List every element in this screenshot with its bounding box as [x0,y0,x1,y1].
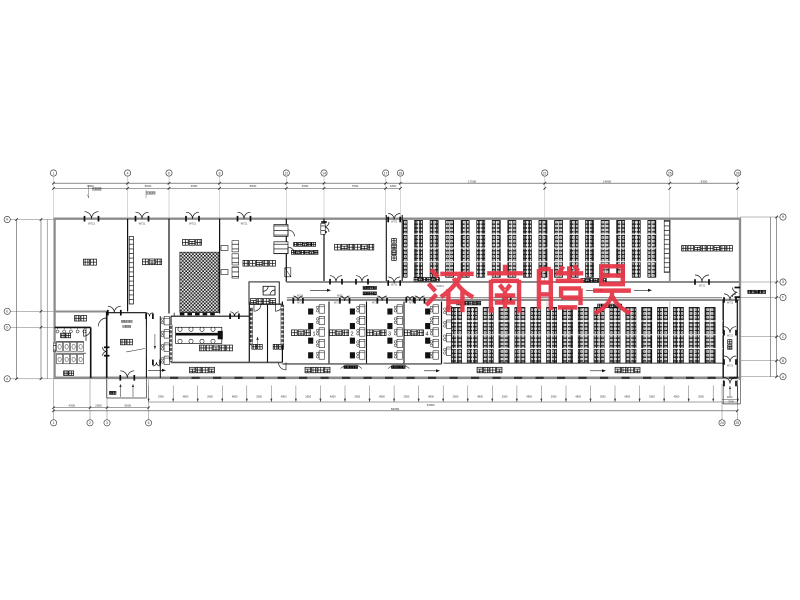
svg-text:4800: 4800 [477,395,483,399]
svg-text:25: 25 [735,421,739,425]
svg-text:9600: 9600 [87,184,94,188]
svg-text:2950: 2950 [502,395,508,399]
svg-text:W721: W721 [189,222,196,226]
svg-text:1: 1 [313,332,316,338]
svg-text:W721: W721 [337,295,344,298]
svg-text:12: 12 [284,171,288,175]
svg-text:1: 1 [53,171,55,175]
svg-text:2950: 2950 [354,395,360,399]
svg-text:4: 4 [127,171,129,175]
svg-text:4800: 4800 [183,395,189,399]
svg-text:2000: 2000 [95,403,102,407]
svg-text:8000: 8000 [250,184,257,188]
svg-text:24: 24 [720,421,724,425]
svg-text:W721: W721 [372,302,379,305]
svg-text:3: 3 [388,332,391,338]
svg-text:7500: 7500 [352,184,359,188]
svg-text:2950: 2950 [649,395,655,399]
svg-text:4: 4 [426,332,429,338]
svg-text:14800: 14800 [603,179,612,183]
svg-text:W721: W721 [727,365,734,368]
svg-text:4800: 4800 [330,395,336,399]
svg-text:1: 1 [53,421,55,425]
svg-text:W721: W721 [727,302,734,305]
svg-text:4300: 4300 [68,403,75,407]
svg-text:2950: 2950 [256,395,262,399]
svg-text:W721: W721 [391,221,398,224]
svg-text:5: 5 [148,421,150,425]
svg-text:F: F [782,296,784,300]
svg-text:4800: 4800 [575,395,581,399]
svg-text:25: 25 [668,171,672,175]
svg-text:4800: 4800 [428,395,434,399]
svg-text:E: E [6,310,8,314]
svg-text:W721: W721 [241,222,248,226]
svg-text:W721: W721 [297,302,304,305]
svg-text:4500: 4500 [191,184,198,188]
svg-text:1800: 1800 [390,184,397,188]
svg-text:2950: 2950 [305,395,311,399]
svg-text:W721: W721 [391,284,398,287]
svg-text:2300: 2300 [728,400,734,404]
svg-text:2950: 2950 [158,395,164,399]
svg-text:14: 14 [322,171,326,175]
svg-text:21: 21 [543,171,547,175]
svg-text:W721: W721 [409,302,416,305]
svg-text:17500: 17500 [468,179,477,183]
svg-text:B: B [782,359,784,363]
svg-text:84950: 84950 [391,407,400,411]
svg-text:2: 2 [89,421,91,425]
svg-text:2: 2 [351,332,354,338]
svg-text:4800: 4800 [624,395,630,399]
svg-text:4800: 4800 [674,395,680,399]
svg-text:5000: 5000 [145,184,152,188]
svg-text:W721: W721 [297,295,304,298]
svg-text:W721: W721 [334,302,341,305]
svg-text:6: 6 [168,171,170,175]
svg-text:8: 8 [219,171,221,175]
svg-text:2950: 2950 [698,395,704,399]
svg-text:4800: 4800 [281,395,287,399]
svg-text:W721: W721 [139,222,146,226]
svg-text:W721: W721 [727,335,734,338]
svg-text:8300: 8300 [701,179,708,183]
svg-text:2950: 2950 [453,395,459,399]
svg-text:2950: 2950 [551,395,557,399]
svg-text:4800: 4800 [526,395,532,399]
svg-text:3: 3 [106,421,108,425]
svg-text:4500: 4500 [302,184,309,188]
svg-text:2950: 2950 [207,395,213,399]
svg-text:W721: W721 [88,222,95,226]
svg-text:W1021: W1021 [436,285,444,288]
svg-text:2950: 2950 [404,395,410,399]
svg-text:W721: W721 [699,285,706,288]
svg-text:18: 18 [399,171,403,175]
svg-text:64950: 64950 [427,403,435,407]
svg-text:5000: 5000 [124,403,131,407]
svg-text:2950: 2950 [600,395,606,399]
svg-text:4800: 4800 [379,395,385,399]
svg-text:4800: 4800 [232,395,238,399]
svg-text:28: 28 [736,171,740,175]
svg-text:17: 17 [384,171,388,175]
